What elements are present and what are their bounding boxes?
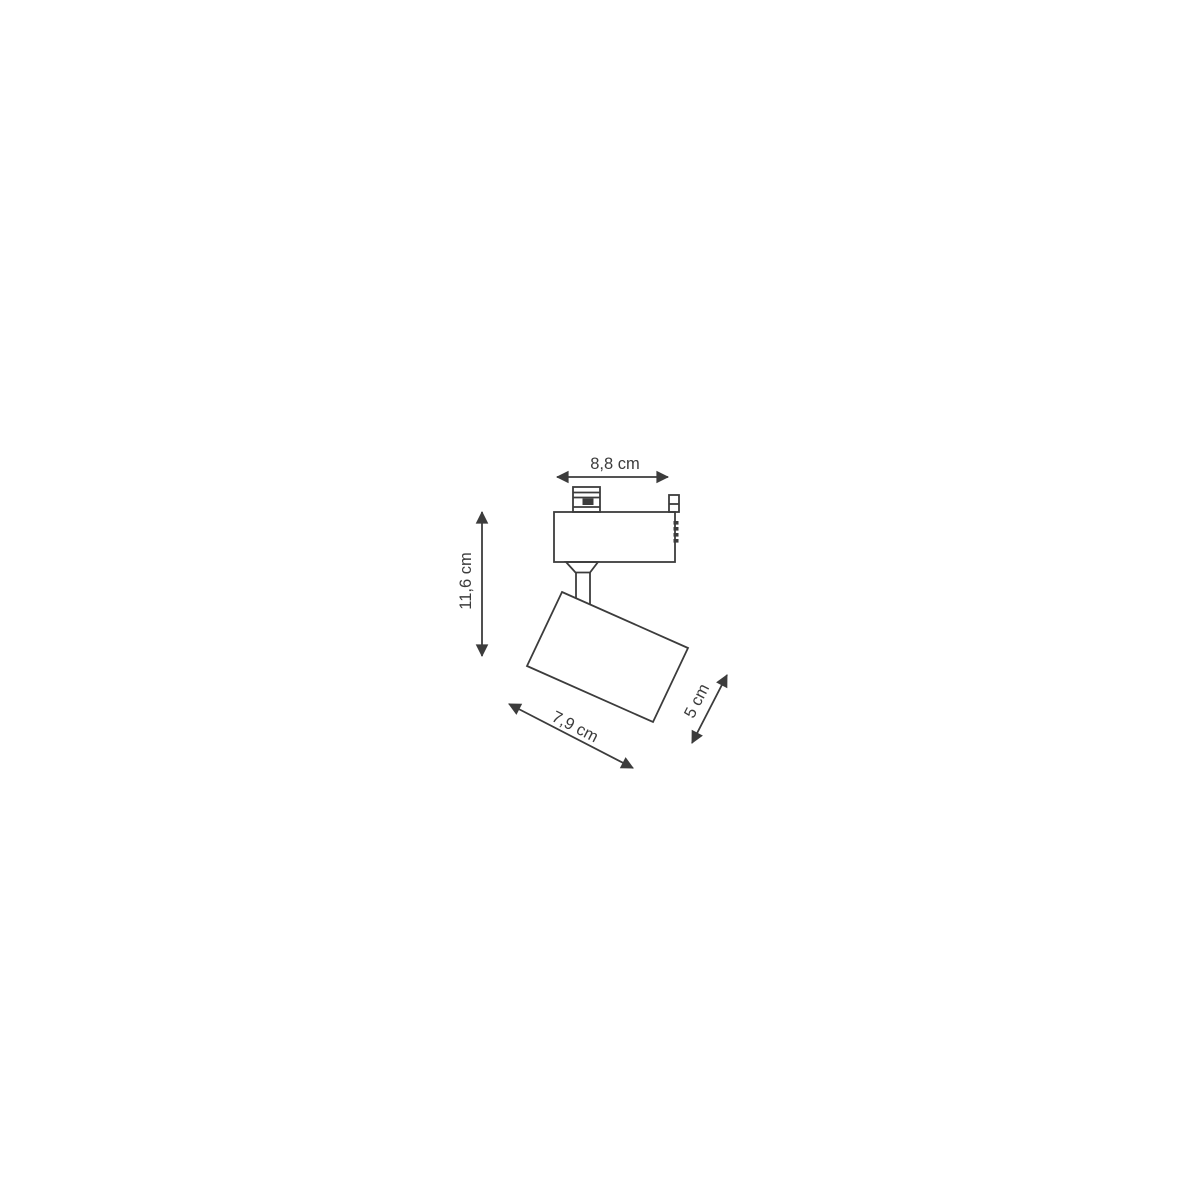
ridge-mark xyxy=(674,539,679,543)
track-light-dimension-diagram: 8,8 cm 11,6 cm 7,9 cm 5 cm xyxy=(0,0,1200,1200)
dimension-label-total-height: 11,6 cm xyxy=(457,552,475,609)
ridge-mark xyxy=(674,533,679,537)
dimension-label-head-length: 7,9 cm xyxy=(549,708,601,747)
dimension-head-length: 7,9 cm xyxy=(509,704,633,768)
ridge-mark xyxy=(674,521,679,525)
release-lever-knob xyxy=(669,495,679,512)
dimension-label-adapter-width: 8,8 cm xyxy=(590,455,640,473)
dimension-total-height: 11,6 cm xyxy=(457,512,482,656)
neck-collar xyxy=(566,562,598,573)
dimension-label-head-diameter: 5 cm xyxy=(681,681,713,721)
dimension-arrow-diagonal-length xyxy=(509,704,633,768)
dimension-head-diameter: 5 cm xyxy=(681,675,727,743)
dimension-adapter-width: 8,8 cm xyxy=(557,455,668,477)
ridge-mark xyxy=(674,527,679,531)
diagram-canvas: 8,8 cm 11,6 cm 7,9 cm 5 cm xyxy=(0,0,1200,1200)
track-connector-plug xyxy=(573,487,600,512)
fixture-drawing xyxy=(527,487,688,722)
connector-contact xyxy=(583,499,594,506)
spotlight-head xyxy=(527,592,688,722)
track-adapter-body xyxy=(554,512,675,562)
